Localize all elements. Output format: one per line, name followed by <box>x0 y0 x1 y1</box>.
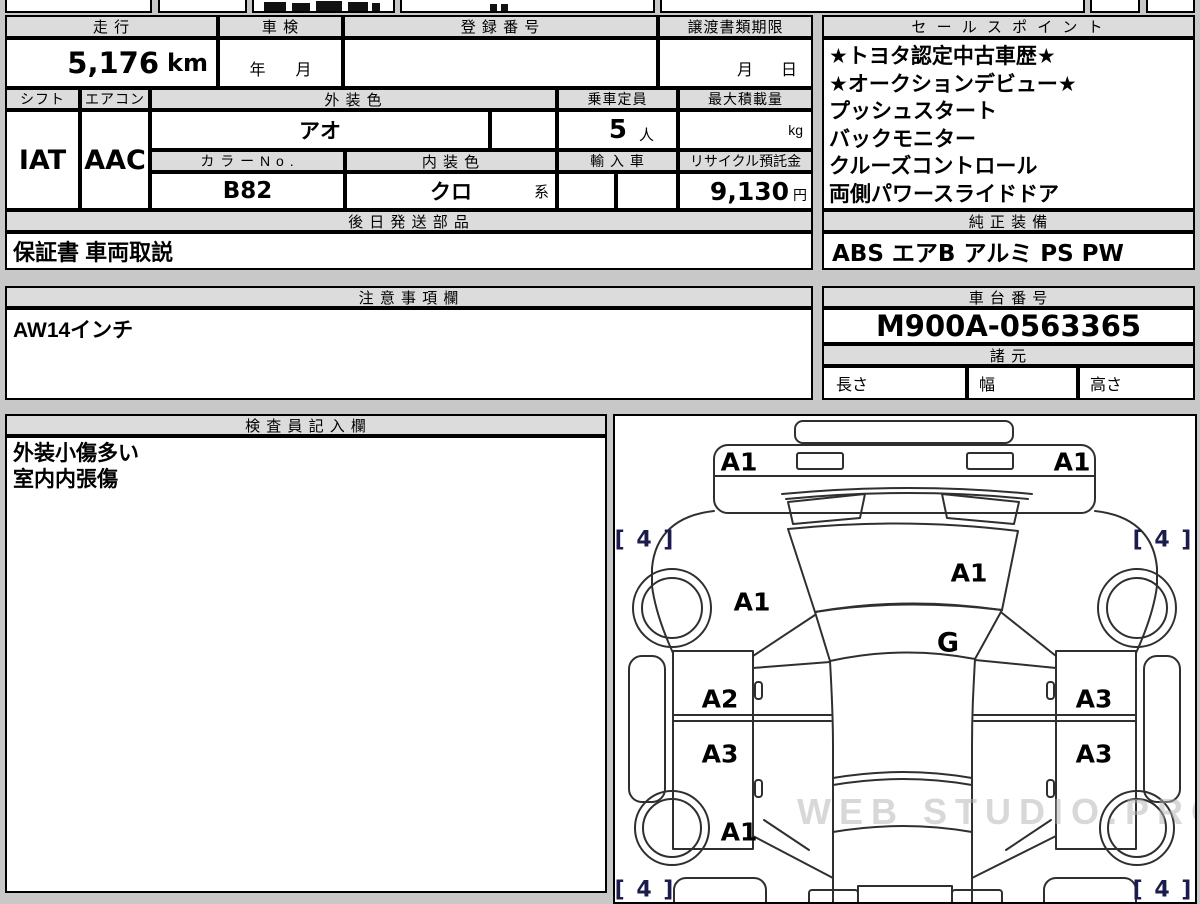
cutoff-cell <box>1146 0 1195 13</box>
shift-header: シフト <box>7 90 78 108</box>
inspection-value: 年 月 <box>220 40 341 86</box>
tire-depth-front-right: [ 4 ] <box>1133 528 1194 553</box>
cutoff-cell <box>158 0 247 13</box>
max-load-header: 最大積載量 <box>680 90 811 108</box>
import-value-1 <box>559 174 614 208</box>
damage-code-door-rear-left: A3 <box>702 740 739 769</box>
interior-color-header: 内 装 色 <box>347 152 555 170</box>
exterior-color-header: 外 装 色 <box>152 90 555 108</box>
recycle-deposit-value: 9,130 円 <box>680 174 811 208</box>
interior-color-suffix: 系 <box>534 181 549 202</box>
capacity-value: 5 人 <box>559 112 676 148</box>
auction-sheet: { "top_table": { "headers": { "mileage":… <box>0 0 1200 900</box>
later-parts-header: 後 日 発 送 部 品 <box>7 212 811 230</box>
sales-point-item: ★オークションデビュー★ <box>829 71 1077 99</box>
inspector-table: 検 査 員 記 入 欄 外装小傷多い 室内内張傷 <box>5 414 607 893</box>
sales-point-item: バックモニター <box>829 126 976 154</box>
damage-code-hood-left: A1 <box>734 588 771 617</box>
tire-depth-rear-left: [ 4 ] <box>615 878 676 903</box>
sales-point-item: 両側パワースライドドア <box>829 181 1059 209</box>
aircon-value: AAC <box>82 112 148 208</box>
max-load-unit: kg <box>788 122 803 138</box>
inspector-note: 室内内張傷 <box>13 467 118 493</box>
inspection-header: 車 検 <box>220 17 341 36</box>
chassis-value: M900A-0563365 <box>824 310 1193 342</box>
transfer-month-label: 月 <box>737 56 753 80</box>
chassis-header: 車 台 番 号 <box>824 288 1193 306</box>
sales-point-item: クルーズコントロール <box>829 153 1037 181</box>
import-header: 輸 入 車 <box>559 152 676 170</box>
capacity-header: 乗車定員 <box>559 90 676 108</box>
transfer-day-label: 日 <box>781 56 797 80</box>
damage-code-front-left: A1 <box>721 448 758 477</box>
damage-code-rear-left: A1 <box>721 818 758 847</box>
interior-color-value: クロ 系 <box>347 174 555 208</box>
dim-height-cell: 高さ <box>1080 368 1193 398</box>
notes-table: 注 意 事 項 欄 AW14インチ <box>5 286 813 400</box>
color-no-value: B82 <box>152 174 343 208</box>
later-parts-value: 保証書 車両取説 <box>7 234 811 268</box>
shift-value: IAT <box>7 112 78 208</box>
mileage-value: 5,176 km <box>7 40 216 86</box>
oem-equipment-value: ABS エアB アルミ PS PW <box>824 234 1193 268</box>
oem-equipment-header: 純 正 装 備 <box>824 212 1193 230</box>
damage-code-door-front-right: A3 <box>1076 685 1113 714</box>
spec-table: 走 行 車 検 登 録 番 号 譲渡書類期限 5,176 km 年 月 月 日 … <box>5 15 813 270</box>
damage-code-door-rear-right: A3 <box>1076 740 1113 769</box>
mileage-header: 走 行 <box>7 17 216 36</box>
sales-points-header: セ ー ル ス ポ イ ン ト <box>824 17 1193 36</box>
cutoff-cell <box>5 0 152 13</box>
aircon-header: エアコン <box>82 90 148 108</box>
recycle-deposit-unit: 円 <box>793 185 807 205</box>
inspector-note: 外装小傷多い <box>13 441 139 467</box>
spec-header: 諸 元 <box>824 346 1193 364</box>
cutoff-cell <box>660 0 1085 13</box>
cutoff-cell <box>252 0 395 13</box>
sales-points-table: セ ー ル ス ポ イ ン ト ★トヨタ認定中古車歴★ ★オークションデビュー★… <box>822 15 1195 270</box>
dim-width-cell: 幅 <box>969 368 1076 398</box>
exterior-color-value: アオ <box>152 112 488 148</box>
registration-header: 登 録 番 号 <box>345 17 656 36</box>
interior-color-name: クロ <box>430 176 472 206</box>
sales-point-item: プッシュスタート <box>829 98 997 126</box>
damage-code-glass: G <box>937 628 959 659</box>
capacity-unit: 人 <box>639 124 654 145</box>
color-no-header: カ ラ ー N o . <box>152 152 343 170</box>
damage-diagram: A1 A1 [ 4 ] [ 4 ] A1 A1 G A2 A3 A3 A3 A1… <box>613 414 1197 904</box>
tire-depth-front-left: [ 4 ] <box>615 528 676 553</box>
damage-code-front-right: A1 <box>1054 448 1091 477</box>
recycle-deposit-header: リサイクル預託金 <box>680 152 811 170</box>
transfer-deadline-header: 譲渡書類期限 <box>660 17 811 36</box>
transfer-deadline-value: 月 日 <box>660 40 811 86</box>
chassis-table: 車 台 番 号 M900A-0563365 諸 元 長さ 幅 高さ <box>822 286 1195 400</box>
sales-point-item: ★トヨタ認定中古車歴★ <box>829 43 1056 71</box>
cutoff-cell <box>1090 0 1140 13</box>
notes-header: 注 意 事 項 欄 <box>7 288 811 306</box>
inspection-month-label: 月 <box>296 56 312 80</box>
import-value-2 <box>618 174 676 208</box>
sales-points-body: ★トヨタ認定中古車歴★ ★オークションデビュー★ プッシュスタート バックモニタ… <box>824 40 1193 208</box>
tire-depth-rear-right: [ 4 ] <box>1133 878 1194 903</box>
capacity-number: 5 <box>609 115 627 145</box>
damage-code-door-front-left: A2 <box>702 685 739 714</box>
max-load-value: kg <box>680 112 811 148</box>
inspector-body: 外装小傷多い 室内内張傷 <box>7 438 605 891</box>
inspection-year-label: 年 <box>249 56 265 80</box>
cutoff-cell <box>400 0 655 13</box>
registration-value <box>345 40 656 86</box>
damage-code-hood-right: A1 <box>951 559 988 588</box>
dim-length-cell: 長さ <box>824 368 965 398</box>
mileage-number: 5,176 <box>67 46 159 80</box>
inspector-header: 検 査 員 記 入 欄 <box>7 416 605 434</box>
recycle-deposit-number: 9,130 <box>710 177 789 206</box>
notes-value: AW14インチ <box>7 310 811 398</box>
mileage-unit: km <box>167 49 208 77</box>
watermark-text: WEB STUDIO.PRO <box>797 791 1197 833</box>
exterior-color-extra <box>492 112 555 148</box>
